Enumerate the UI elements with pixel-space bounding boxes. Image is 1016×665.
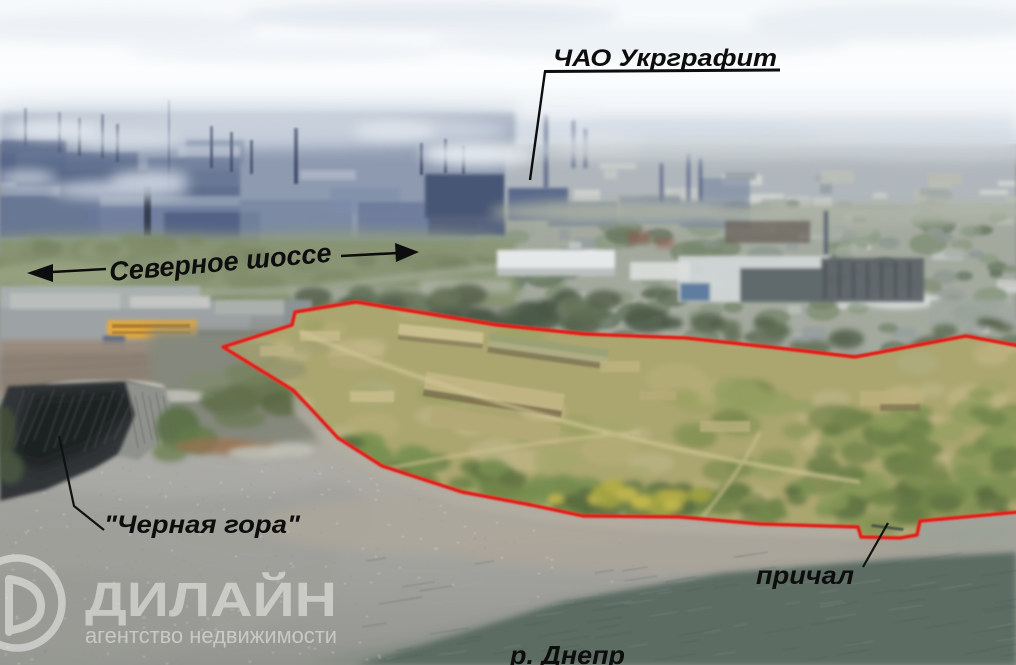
svg-text:ЧАО Укрграфит: ЧАО Укрграфит (553, 45, 777, 72)
svg-text:ДИЛАЙН: ДИЛАЙН (85, 572, 337, 627)
svg-text:агентство недвижимости: агентство недвижимости (85, 623, 337, 648)
svg-text:р. Днепр: р. Днепр (509, 640, 625, 665)
svg-text:"Черная гора": "Черная гора" (104, 511, 301, 539)
svg-text:причал: причал (756, 562, 854, 590)
